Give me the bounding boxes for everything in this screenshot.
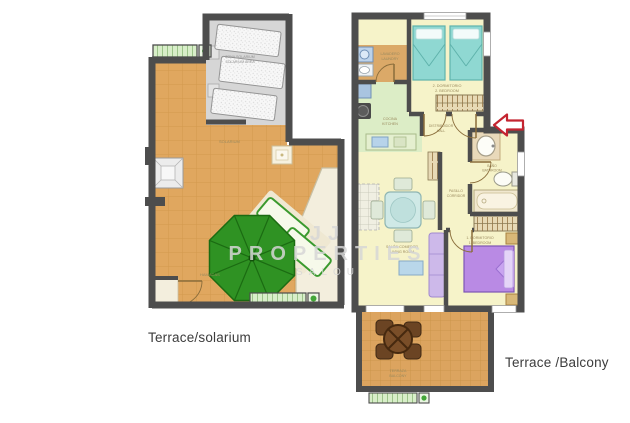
bathtub-inner xyxy=(477,193,517,209)
bedroom1-label: 1. DORMITORIO xyxy=(466,236,493,240)
kitchen-sink xyxy=(372,137,388,147)
toilet-bowl xyxy=(494,172,512,186)
hall-label: CORRIDOR xyxy=(447,194,466,198)
dining-chair xyxy=(423,201,435,219)
wall-stub xyxy=(145,197,165,206)
deck-label: ZONA SOLARIUM xyxy=(225,55,255,59)
right-plan: LAVADERO LAUNDRY 2. DORMITORIO 2. BEDROO… xyxy=(352,13,525,404)
wall-stub xyxy=(145,147,154,165)
bedroom2-label: 2. BEDROOM xyxy=(435,89,459,93)
balcony-planter xyxy=(369,393,429,403)
bedroom2-wardrobe xyxy=(436,95,486,111)
plant-icon xyxy=(311,296,317,302)
top-planter xyxy=(153,45,211,57)
balcony-label: BALCONY xyxy=(389,374,407,378)
floorplan-page: ZONA SOLARIUM SOLARIUM AREA xyxy=(0,0,630,423)
planter-box xyxy=(153,45,197,57)
outdoor-sink-fixture xyxy=(272,146,292,164)
bath-label: BATHROOM xyxy=(482,169,502,173)
window xyxy=(484,32,491,56)
living-label: SALÓN COMEDOR xyxy=(386,244,418,249)
kitchen-label: COCINA xyxy=(383,117,398,121)
skylight xyxy=(153,158,183,188)
bedroom2-label: 2. DORMITORIO xyxy=(433,84,462,88)
plant-icon xyxy=(421,395,426,400)
bed-2a-pillow xyxy=(416,29,442,39)
basin-faucet xyxy=(492,145,495,148)
dining-chair xyxy=(371,201,383,219)
window xyxy=(492,306,516,313)
utility-room: LAVADERO LAUNDRY xyxy=(355,45,408,82)
deck-label: SOLARIUM AREA xyxy=(225,60,255,64)
dining-table-glass xyxy=(391,198,416,223)
window xyxy=(366,306,404,313)
dining-chair xyxy=(394,230,412,242)
planter-box xyxy=(369,393,417,403)
dining-chair xyxy=(394,178,412,190)
parasol xyxy=(210,216,295,301)
utility-sink-bowl xyxy=(360,67,370,74)
utility-label: LAVADERO xyxy=(380,52,399,56)
hall-label: PASILLO xyxy=(449,189,463,193)
caption-terrace-balcony: Terrace /Balcony xyxy=(505,355,609,370)
window xyxy=(518,152,525,176)
window xyxy=(424,306,444,313)
washing-machine-drum xyxy=(360,50,369,59)
bed-1-pillow xyxy=(504,250,513,288)
coffee-table xyxy=(399,261,423,275)
kitchen-label: KITCHEN xyxy=(382,122,398,126)
utility-label: LAUNDRY xyxy=(381,57,399,61)
bed-2b-pillow xyxy=(453,29,479,39)
sunbed-area-label: HAMACAS xyxy=(200,272,220,277)
left-plan: ZONA SOLARIUM SOLARIUM AREA xyxy=(145,14,344,308)
sofa xyxy=(429,233,445,297)
stove-burner xyxy=(358,106,369,117)
bath-label: BAÑO xyxy=(487,163,497,168)
solarium-label: SOLARIUM xyxy=(219,139,240,144)
caption-terrace-solarium: Terrace/solarium xyxy=(148,330,251,345)
living-label: LIVING ROOM xyxy=(390,250,414,254)
balcony-label: TERRAZA xyxy=(390,369,407,373)
kitchen-hob xyxy=(394,137,406,147)
bedroom1-wardrobe xyxy=(474,216,521,231)
sun-lounger-group xyxy=(208,24,285,121)
